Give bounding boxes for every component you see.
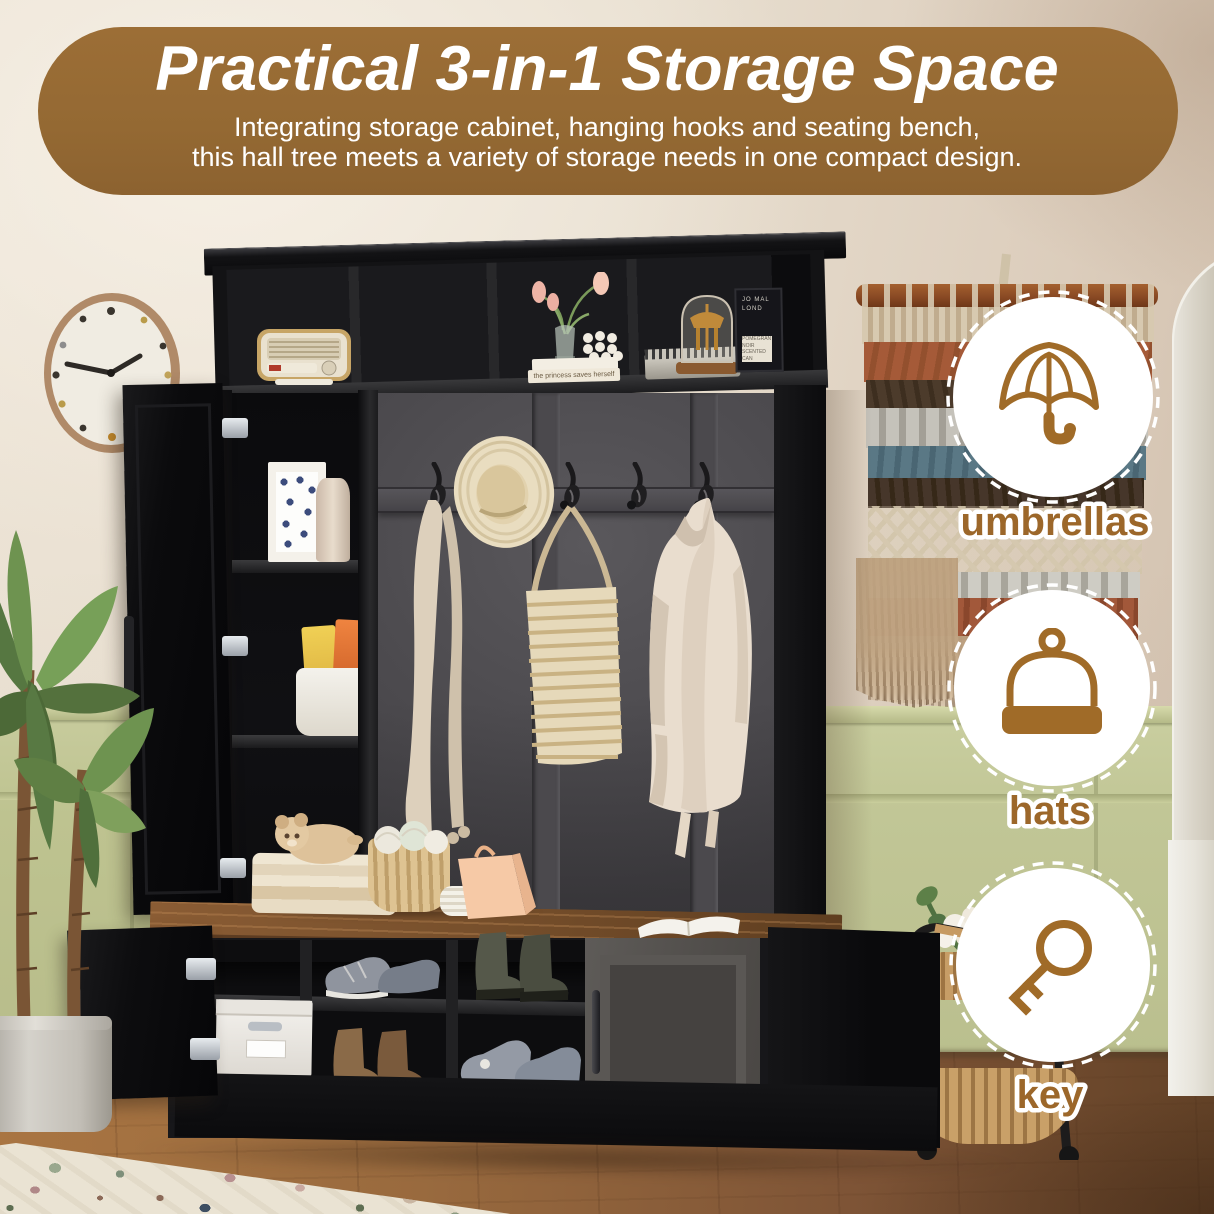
svg-text:umbrellas: umbrellas [961, 500, 1150, 544]
svg-text:hats: hats [1009, 789, 1091, 833]
svg-text:key: key [1017, 1073, 1084, 1117]
